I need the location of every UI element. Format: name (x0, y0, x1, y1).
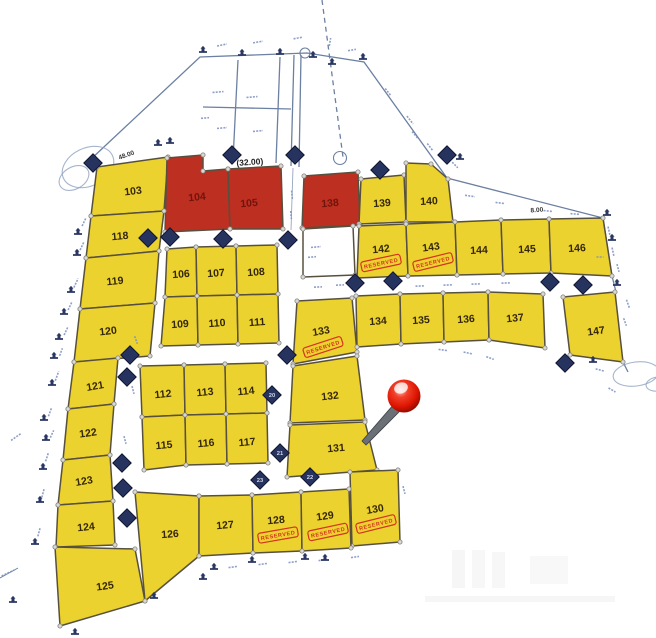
diamond-number: 23 (257, 478, 264, 484)
tick-annotation (571, 214, 580, 215)
dimension-label: 48.00 (118, 149, 136, 161)
lot-number: 136 (457, 313, 475, 326)
corner-node (266, 461, 270, 465)
corner-node (453, 220, 457, 224)
monument-marker-icon (301, 553, 309, 560)
survey-diamond-marker: 21 (271, 444, 289, 462)
lot-120[interactable]: 120 (72, 301, 157, 364)
survey-diamond-marker (438, 146, 456, 164)
tick-annotation (217, 128, 227, 129)
lot-133[interactable]: 133RESERVED (291, 296, 359, 366)
corner-node (116, 356, 120, 360)
lot-number: 110 (208, 317, 226, 330)
corner-node (225, 462, 229, 466)
lot-number: 103 (124, 184, 143, 198)
lot-143[interactable]: 143RESERVED (404, 220, 459, 278)
corner-node (446, 177, 450, 181)
tick-annotation (64, 327, 68, 335)
lot-number: 139 (373, 197, 391, 210)
monument-marker-icon (50, 352, 58, 359)
lot-number: 104 (188, 191, 207, 205)
location-pin[interactable] (362, 380, 421, 446)
lot-number: 144 (470, 244, 488, 257)
corner-node (300, 549, 304, 553)
monument-marker-icon (74, 228, 82, 235)
corner-node (561, 295, 565, 299)
lot-number: 112 (154, 388, 172, 402)
monument-marker-icon (154, 139, 162, 146)
tick-annotation (291, 211, 292, 219)
tick-annotation (294, 37, 303, 39)
lot-147[interactable]: 147 (561, 290, 625, 364)
tick-annotation (608, 227, 610, 236)
corner-node (302, 174, 306, 178)
corner-node (66, 407, 70, 411)
lot-138[interactable]: 138 (300, 170, 362, 230)
tick-annotation (452, 162, 458, 168)
lot-number: 132 (321, 390, 340, 404)
lot-113[interactable]: 113 (182, 362, 228, 417)
corner-node (148, 354, 152, 358)
corner-node (162, 209, 166, 213)
corner-node (404, 222, 408, 226)
tick-annotation (68, 302, 72, 310)
lot-123[interactable]: 123 (56, 453, 115, 507)
corner-node (58, 624, 62, 628)
corner-node (621, 360, 625, 364)
tick-annotation (217, 44, 227, 46)
corner-node (236, 342, 240, 346)
lot-number: 145 (518, 243, 536, 256)
lot-number: 122 (79, 426, 98, 440)
lot-number: 115 (155, 439, 173, 452)
lot-number: 146 (568, 242, 586, 255)
lot-boundary[interactable] (303, 226, 355, 277)
monument-marker-icon (359, 53, 367, 60)
survey-diamond-marker (574, 276, 592, 294)
monument-marker-icon (31, 538, 39, 545)
lot-124[interactable]: 124 (54, 499, 117, 549)
corner-node (196, 343, 200, 347)
corner-node (133, 547, 137, 551)
lot-number: 106 (172, 268, 190, 281)
corner-node (53, 545, 57, 549)
corner-node (281, 227, 285, 231)
lot-130[interactable]: 130RESERVED (348, 468, 402, 548)
lot-109[interactable]: 109 (159, 294, 200, 348)
lot-number: 117 (238, 436, 256, 449)
corner-node (182, 363, 186, 367)
monument-marker-icon (36, 496, 44, 503)
lot-boundary[interactable] (135, 492, 199, 601)
tick-annotation (213, 92, 224, 93)
lot-140[interactable]: 140 (404, 161, 455, 224)
corner-node (264, 361, 268, 365)
corner-node (183, 413, 187, 417)
corner-node (226, 167, 230, 171)
corner-node (406, 274, 410, 278)
corner-node (613, 290, 617, 294)
tick-annotation (292, 191, 293, 200)
corner-node (142, 468, 146, 472)
corner-node (108, 453, 112, 457)
tick-annotation (439, 349, 448, 350)
corner-node (235, 293, 239, 297)
pin-layer (362, 380, 421, 446)
lot-104[interactable]: 104 (163, 153, 232, 234)
lot-number: 113 (196, 386, 214, 400)
corner-node (250, 493, 254, 497)
lot-112[interactable]: 112 (138, 363, 187, 419)
monument-marker-icon (238, 49, 246, 56)
corner-node (357, 224, 361, 228)
corner-node (197, 554, 201, 558)
diamond-number: 22 (307, 475, 313, 481)
lot-126[interactable]: 126 (133, 490, 201, 603)
monument-marker-icon (55, 333, 63, 340)
tick-annotation (496, 202, 505, 203)
tick-annotation (50, 430, 53, 437)
corner-node (354, 294, 358, 298)
lot-108[interactable]: 108 (234, 243, 280, 297)
tick-annotation (201, 118, 209, 119)
lot-119[interactable]: 119 (78, 249, 161, 311)
monument-marker-icon (166, 137, 174, 144)
corner-node (265, 411, 269, 415)
corner-node (455, 273, 459, 277)
corner-node (543, 346, 547, 350)
corner-node (396, 468, 400, 472)
corner-node (275, 243, 279, 247)
corner-node (288, 423, 292, 427)
lot-115[interactable]: 115 (140, 413, 188, 472)
monument-marker-icon (71, 628, 79, 635)
corner-node (111, 499, 115, 503)
tick-annotation (38, 528, 40, 537)
lot-145[interactable]: 145 (499, 217, 553, 276)
lot-number: 111 (248, 316, 265, 329)
corner-node (72, 360, 76, 364)
corner-node (78, 307, 82, 311)
corner-node (350, 296, 354, 300)
corner-node (291, 364, 295, 368)
survey-diamond-marker: 23 (251, 471, 269, 489)
tick-annotation (80, 242, 84, 250)
corner-node (356, 170, 360, 174)
tick-annotation (74, 278, 78, 287)
lot-136[interactable]: 136 (441, 290, 491, 344)
lot-number: 105 (240, 197, 259, 210)
corner-node (157, 249, 161, 253)
corner-node (355, 350, 359, 354)
corner-node (184, 463, 188, 467)
corner-node (201, 153, 205, 157)
corner-node (355, 354, 359, 358)
tick-annotation (289, 561, 298, 562)
lot-number: 114 (237, 385, 255, 399)
tick-annotation (11, 434, 21, 441)
diamond-number: 20 (269, 393, 275, 399)
lot-boundary[interactable] (290, 356, 365, 423)
tick-annotation (626, 300, 629, 308)
diamond-icon (113, 454, 131, 472)
monument-marker-icon (210, 563, 218, 570)
monument-marker-icon (328, 58, 336, 65)
lot-144[interactable]: 144 (453, 218, 505, 277)
lot-114[interactable]: 114 (223, 361, 269, 416)
lot-number: 120 (99, 324, 118, 338)
diamond-icon (279, 231, 297, 249)
corner-node (398, 292, 402, 296)
tick-annotation (612, 248, 614, 257)
lot-137[interactable]: 137 (486, 290, 547, 350)
diamond-icon (438, 146, 456, 164)
tick-annotation (48, 408, 51, 416)
tick-annotation (465, 195, 475, 196)
corner-node (276, 292, 280, 296)
tick-annotation (55, 371, 58, 380)
corner-node (163, 295, 167, 299)
corner-node (363, 420, 367, 424)
tick-annotation (348, 49, 356, 50)
lot-number: 109 (171, 318, 189, 331)
corner-node (89, 214, 93, 218)
corner-node (61, 458, 65, 462)
lot-142[interactable]: 142RESERVED (355, 222, 410, 280)
corner-node (610, 274, 614, 278)
diamond-icon (118, 368, 136, 386)
tick-annotation (60, 348, 63, 356)
survey-diamond-marker (114, 479, 132, 497)
monument-marker-icon (603, 209, 611, 216)
corner-node (301, 227, 305, 231)
lot-146[interactable]: 146 (547, 216, 614, 278)
lot-122[interactable]: 122 (61, 402, 116, 462)
lot-number: 135 (412, 314, 430, 327)
lot-number: 119 (106, 275, 124, 289)
tick-annotation (609, 388, 616, 392)
lot-number: 124 (77, 521, 96, 535)
tick-annotation (624, 318, 627, 326)
lot-139[interactable]: 139 (357, 173, 408, 226)
monument-marker-icon (321, 554, 329, 561)
corner-node (501, 272, 505, 276)
corner-node (404, 161, 408, 165)
corner-node (84, 256, 88, 260)
tick-annotation (351, 556, 359, 557)
corner-node (301, 275, 305, 279)
corner-node (347, 487, 351, 491)
corner-node (159, 344, 163, 348)
corner-node (133, 490, 137, 494)
diamond-icon (118, 509, 136, 527)
corner-node (165, 247, 169, 251)
cloud-scribble (612, 359, 656, 389)
tick-annotation (42, 489, 44, 498)
lot-number: 108 (247, 266, 265, 279)
lot-number: 131 (327, 442, 346, 455)
corner-node (499, 218, 503, 222)
monument-marker-icon (276, 48, 284, 55)
diamond-icon (114, 479, 132, 497)
tick-annotation (596, 369, 605, 371)
monument-marker-icon (248, 556, 256, 563)
lot-number: 143 (422, 240, 441, 254)
tick-annotation (253, 131, 263, 132)
corner-node (441, 291, 445, 295)
lot-number: 129 (316, 509, 335, 523)
lot-number: 138 (321, 197, 340, 210)
survey-diamond-marker (541, 273, 559, 291)
corner-node (349, 546, 353, 550)
lot-116[interactable]: 116 (183, 412, 229, 467)
corner-node (56, 503, 60, 507)
corner-node (398, 540, 402, 544)
corner-node (547, 217, 551, 221)
tick-annotation (403, 486, 405, 494)
tick-annotation (124, 436, 126, 444)
corner-node (541, 292, 545, 296)
monument-marker-icon (40, 414, 48, 421)
tick-annotation (253, 41, 263, 43)
corner-node (234, 244, 238, 248)
lot-boundary[interactable] (406, 163, 453, 222)
corner-node (153, 301, 157, 305)
monument-marker-icon (42, 434, 50, 441)
corner-node (429, 162, 433, 166)
plat-map: 1031041051381181191201211221231241251061… (0, 0, 656, 638)
dimension-label: 8.00 (530, 207, 543, 215)
tick-annotation (617, 264, 619, 272)
survey-diamond-marker (113, 454, 131, 472)
lot-number: 116 (197, 437, 215, 450)
lot-110[interactable]: 110 (195, 293, 240, 347)
survey-diamond-marker (118, 368, 136, 386)
tick-annotation (329, 38, 330, 46)
diamond-icon (574, 276, 592, 294)
corner-node (442, 340, 446, 344)
corner-node (568, 353, 572, 357)
lot-number: 127 (216, 519, 235, 532)
tick-annotation (427, 143, 433, 150)
tick-annotation (544, 211, 553, 212)
survey-diamond-marker (279, 231, 297, 249)
lot-106[interactable]: 106 (163, 245, 199, 299)
survey-circle (334, 152, 347, 165)
monument-marker-icon (199, 46, 207, 53)
lot-131[interactable]: 131 (285, 420, 379, 479)
corner-node (113, 543, 117, 547)
diamond-icon (541, 273, 559, 291)
corner-node (487, 338, 491, 342)
monument-marker-icon (456, 153, 464, 160)
lot-number: 125 (96, 579, 115, 593)
corner-node (486, 290, 490, 294)
lot-number: 142 (372, 243, 391, 257)
tick-annotation (82, 218, 86, 226)
corner-node (140, 415, 144, 419)
tick-annotation (308, 257, 316, 258)
corner-node (279, 164, 283, 168)
lot-105[interactable]: 105 (226, 164, 285, 231)
diamond-icon (286, 146, 304, 164)
lot-number: 118 (111, 230, 129, 243)
corner-node (251, 551, 255, 555)
lot-107[interactable]: 107 (194, 244, 239, 298)
survey-diamond-marker (286, 146, 304, 164)
corner-node (277, 341, 281, 345)
tick-annotation (46, 453, 49, 462)
watermark (425, 550, 615, 602)
corner-node (143, 599, 147, 603)
monument-marker-icon (60, 308, 68, 315)
dimension-label: (32.00) (236, 156, 264, 168)
lot-number: 126 (161, 528, 179, 541)
corner-node (195, 294, 199, 298)
corner-node (138, 364, 142, 368)
corner-node (112, 402, 116, 406)
monument-marker-icon (199, 573, 207, 580)
lot-129[interactable]: 129RESERVED (299, 487, 353, 553)
tick-annotation (486, 357, 494, 360)
corner-node (201, 169, 205, 173)
lot-number: 107 (207, 267, 225, 280)
corner-node (223, 362, 227, 366)
survey-diamond-marker (118, 509, 136, 527)
lot-number: 128 (267, 514, 286, 527)
tick-annotation (247, 97, 258, 98)
corner-node (351, 224, 355, 228)
corner-node (228, 227, 232, 231)
corner-node (601, 216, 605, 220)
lot-111[interactable]: 111 (235, 292, 281, 346)
corner-node (295, 299, 299, 303)
lot-117[interactable]: 117 (224, 411, 270, 466)
corner-node (165, 156, 169, 160)
tick-annotation (259, 563, 268, 564)
corner-node (224, 412, 228, 416)
unshaded-parcel[interactable] (301, 224, 357, 279)
tick-annotation (132, 386, 134, 394)
corner-node (299, 490, 303, 494)
lot-number: 147 (587, 324, 606, 338)
tick-annotation (229, 566, 238, 567)
corner-node (355, 345, 359, 349)
lot-128[interactable]: 128RESERVED (250, 490, 304, 555)
lot-127[interactable]: 127 (197, 493, 255, 558)
lot-number: 140 (420, 195, 438, 208)
diamond-number: 21 (277, 451, 284, 457)
lot-132[interactable]: 132 (288, 354, 367, 425)
corner-node (197, 494, 201, 498)
lot-number: 137 (506, 312, 525, 326)
corner-node (359, 177, 363, 181)
lot-134[interactable]: 134 (354, 292, 403, 349)
corner-node (285, 475, 289, 479)
lot-125[interactable]: 125 (53, 545, 147, 628)
lot-number: 134 (369, 315, 387, 328)
monument-marker-icon (9, 596, 17, 603)
lot-135[interactable]: 135 (398, 291, 446, 346)
tick-annotation (464, 352, 473, 354)
corner-node (194, 245, 198, 249)
monument-marker-icon (39, 463, 47, 470)
corner-node (399, 342, 403, 346)
corner-node (348, 470, 352, 474)
subdivision-plat-svg: 1031041051381181191201211221231241251061… (0, 0, 656, 638)
